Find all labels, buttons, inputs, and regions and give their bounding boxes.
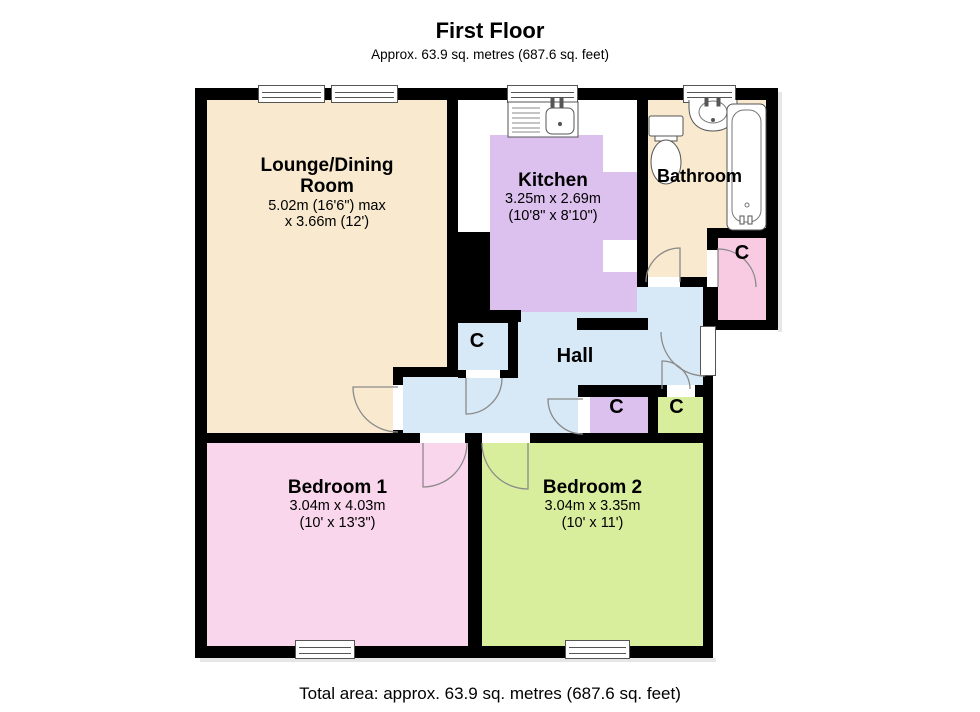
room-label-bedroom2: Bedroom 2 3.04m x 3.35m (10' x 11') bbox=[482, 477, 703, 531]
door-arc-entrance bbox=[661, 332, 705, 376]
bedroom1-dims-line1: 3.04m x 4.03m bbox=[207, 498, 468, 514]
door-arc-inner-cupboard1 bbox=[548, 399, 583, 434]
bathroom-name: Bathroom bbox=[637, 166, 762, 186]
bedroom1-name: Bedroom 1 bbox=[207, 477, 468, 498]
external-cupboard-label: C bbox=[718, 242, 766, 264]
room-label-bedroom1: Bedroom 1 3.04m x 4.03m (10' x 13'3") bbox=[207, 477, 468, 531]
kitchen-name: Kitchen bbox=[468, 170, 638, 191]
symbols-layer bbox=[0, 0, 980, 712]
room-label-bathroom: Bathroom bbox=[637, 166, 762, 186]
bedroom2-dims-line1: 3.04m x 3.35m bbox=[482, 498, 703, 514]
floor-plan: First Floor Approx. 63.9 sq. metres (687… bbox=[0, 0, 980, 712]
kitchen-sink-icon bbox=[508, 98, 578, 137]
door-arc-bathroom bbox=[646, 248, 680, 282]
room-label-hall: Hall bbox=[520, 345, 630, 367]
bedroom1-dims-line2: (10' x 13'3") bbox=[207, 515, 468, 531]
hall-cupboard-label: C bbox=[452, 330, 502, 352]
door-arc-inner-cupboard2 bbox=[662, 361, 690, 389]
kitchen-dims-line1: 3.25m x 2.69m bbox=[468, 191, 638, 207]
door-arc-hall-cupboard bbox=[466, 378, 502, 414]
lounge-name-line1: Lounge/Dining bbox=[207, 155, 447, 176]
lounge-dims-line2: x 3.66m (12') bbox=[207, 214, 447, 230]
page-title: First Floor bbox=[0, 18, 980, 44]
room-label-kitchen: Kitchen 3.25m x 2.69m (10'8" x 8'10") bbox=[468, 170, 638, 224]
bedroom2-dims-line2: (10' x 11') bbox=[482, 515, 703, 531]
total-area-text: Total area: approx. 63.9 sq. metres (687… bbox=[0, 684, 980, 704]
bedroom2-name: Bedroom 2 bbox=[482, 477, 703, 498]
hall-name: Hall bbox=[520, 345, 630, 367]
door-arc-lounge bbox=[353, 387, 398, 432]
lounge-dims-line1: 5.02m (16'6") max bbox=[207, 198, 447, 214]
page-subtitle: Approx. 63.9 sq. metres (687.6 sq. feet) bbox=[0, 47, 980, 62]
kitchen-dims-line2: (10'8" x 8'10") bbox=[468, 208, 638, 224]
lounge-name-line2: Room bbox=[207, 176, 447, 197]
inner-cupboard1-label: C bbox=[583, 396, 650, 418]
room-label-lounge: Lounge/Dining Room 5.02m (16'6") max x 3… bbox=[207, 155, 447, 230]
inner-cupboard2-label: C bbox=[650, 396, 703, 418]
